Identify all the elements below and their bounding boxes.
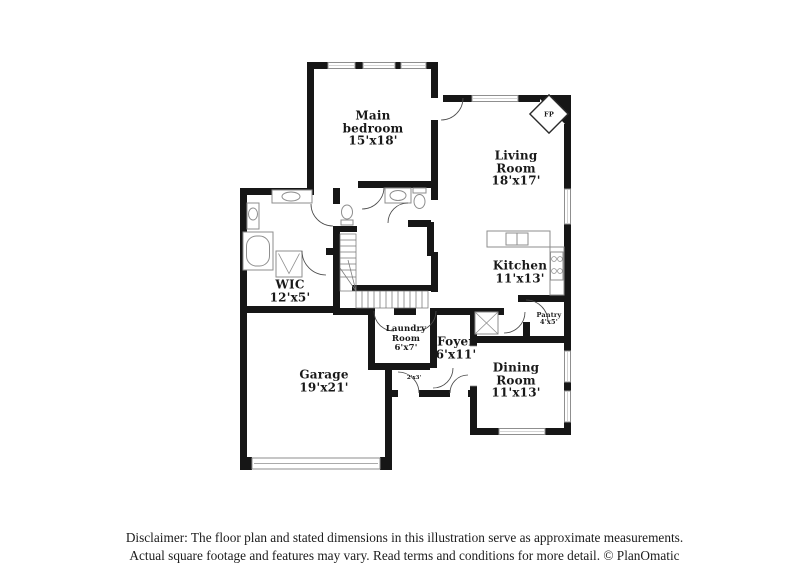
sink-vanity-top: [272, 190, 312, 203]
room-label-dining-room: Dining Room 11'x13': [490, 361, 542, 399]
room-name: Main bedroom: [340, 109, 406, 134]
room-label-main-bedroom: Main bedroom 15'x18': [340, 109, 406, 147]
toilet-water-closet: [341, 205, 353, 225]
room-dims: 2'x3': [399, 375, 429, 381]
room-dims: 6'x11': [421, 348, 491, 361]
sink-vanity-bath2: [385, 188, 411, 203]
room-name: Foyer: [421, 336, 491, 349]
room-dims: 4'x5': [531, 319, 567, 326]
fireplace-label: FP: [539, 112, 559, 119]
room-label-pantry: Pantry 4'x5': [531, 312, 567, 326]
room-label-kitchen: Kitchen 11'x13': [485, 260, 555, 285]
toilet-bath2: [413, 188, 426, 209]
floorplan-page: Main bedroom 15'x18' Living Room 18'x17'…: [0, 0, 809, 588]
room-dims: 12'x5': [255, 291, 325, 304]
room-dims: 15'x18': [340, 134, 406, 147]
coat-closet: [475, 312, 498, 334]
fireplace-abbr: FP: [539, 112, 559, 119]
room-dims: 11'x13': [490, 386, 542, 399]
disclaimer-line-2: Actual square footage and features may v…: [0, 547, 809, 565]
room-name: Garage: [284, 369, 364, 382]
kitchen-sink: [506, 233, 528, 245]
disclaimer: Disclaimer: The floor plan and stated di…: [0, 529, 809, 564]
room-name: WIC: [255, 279, 325, 292]
room-label-foyer: Foyer 6'x11': [421, 336, 491, 361]
room-label-wic: WIC 12'x5': [255, 279, 325, 304]
room-name: Kitchen: [485, 260, 555, 273]
room-label-living-room: Living Room 18'x17': [491, 149, 541, 187]
room-dims: 11'x13': [485, 272, 555, 285]
room-dims: 19'x21': [284, 381, 364, 394]
sink-vanity-left: [247, 203, 259, 229]
disclaimer-line-1: Disclaimer: The floor plan and stated di…: [0, 529, 809, 547]
bathtub: [243, 232, 273, 270]
shower: [276, 251, 302, 277]
stairs: [340, 234, 428, 308]
room-dims: 18'x17': [491, 174, 541, 187]
room-name: Dining Room: [490, 361, 542, 386]
room-label-garage: Garage 19'x21': [284, 369, 364, 394]
room-label-hall: 2'x3': [399, 375, 429, 381]
garage-door: [252, 458, 380, 469]
room-name: Living Room: [491, 149, 541, 174]
floor-plan: [0, 0, 809, 588]
